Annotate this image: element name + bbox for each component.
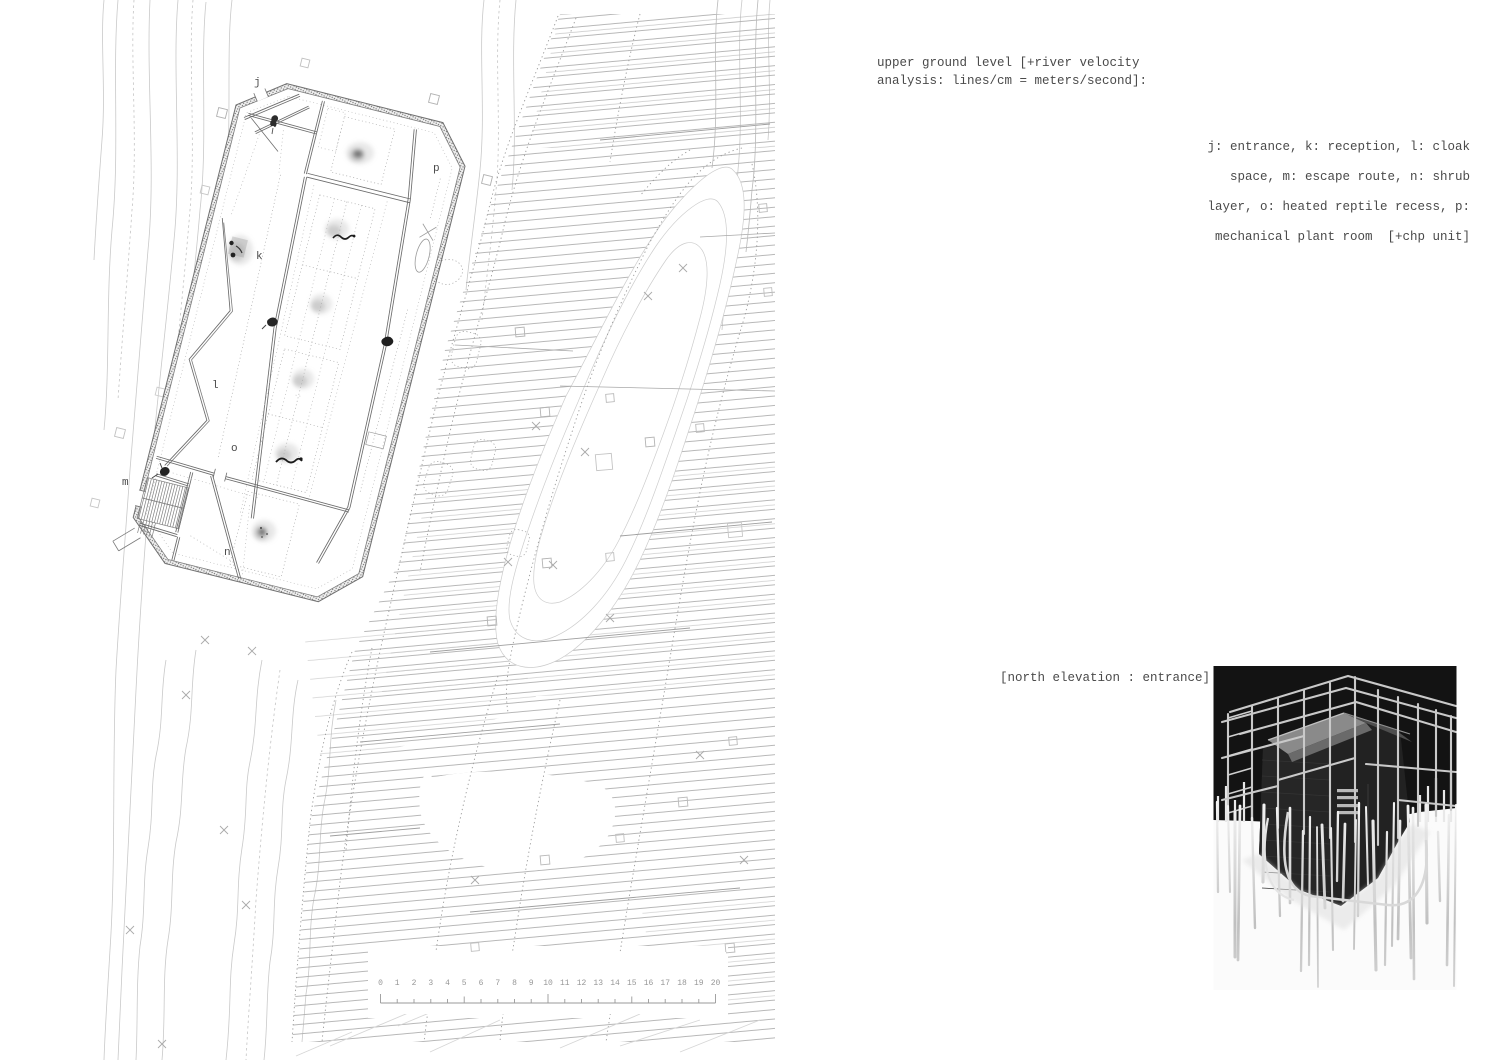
svg-text:l: l: [212, 380, 219, 392]
svg-text:o: o: [231, 443, 238, 455]
svg-text:j: j: [254, 77, 261, 89]
svg-text:upper ground level [+river vel: upper ground level [+river velocity: [877, 56, 1140, 70]
svg-text:analysis: lines/cm = meters/se: analysis: lines/cm = meters/second]:: [877, 74, 1147, 88]
svg-text:m: m: [122, 477, 129, 489]
svg-text:3: 3: [428, 979, 433, 988]
svg-text:space, m: escape route, n: shr: space, m: escape route, n: shrub: [1230, 170, 1470, 184]
svg-text:0: 0: [378, 979, 383, 988]
svg-text:7: 7: [495, 979, 500, 988]
svg-text:17: 17: [660, 979, 670, 988]
svg-text:p: p: [433, 163, 440, 175]
svg-text:8: 8: [512, 979, 517, 988]
svg-text:9: 9: [529, 979, 534, 988]
svg-text:j: entrance, k: reception, l:: j: entrance, k: reception, l: cloak: [1207, 140, 1470, 154]
svg-text:14: 14: [610, 979, 620, 988]
svg-text:n: n: [224, 547, 231, 559]
svg-text:mechanical plant room [+chp u: mechanical plant room [+chp unit]: [1215, 230, 1470, 244]
svg-text:12: 12: [577, 979, 587, 988]
svg-text:layer, o: heated reptile reces: layer, o: heated reptile recess, p:: [1207, 200, 1470, 214]
svg-text:4: 4: [445, 979, 450, 988]
svg-text:1: 1: [395, 979, 400, 988]
svg-text:13: 13: [593, 979, 603, 988]
svg-text:16: 16: [644, 979, 654, 988]
svg-text:10: 10: [543, 979, 553, 988]
svg-text:[north elevation : entrance]: [north elevation : entrance]: [1000, 671, 1210, 685]
svg-text:15: 15: [627, 979, 637, 988]
svg-text:11: 11: [560, 979, 570, 988]
svg-text:6: 6: [479, 979, 484, 988]
svg-text:19: 19: [694, 979, 704, 988]
svg-text:18: 18: [677, 979, 687, 988]
svg-text:5: 5: [462, 979, 467, 988]
svg-text:k: k: [256, 251, 263, 263]
svg-text:20: 20: [711, 979, 721, 988]
svg-text:2: 2: [412, 979, 417, 988]
